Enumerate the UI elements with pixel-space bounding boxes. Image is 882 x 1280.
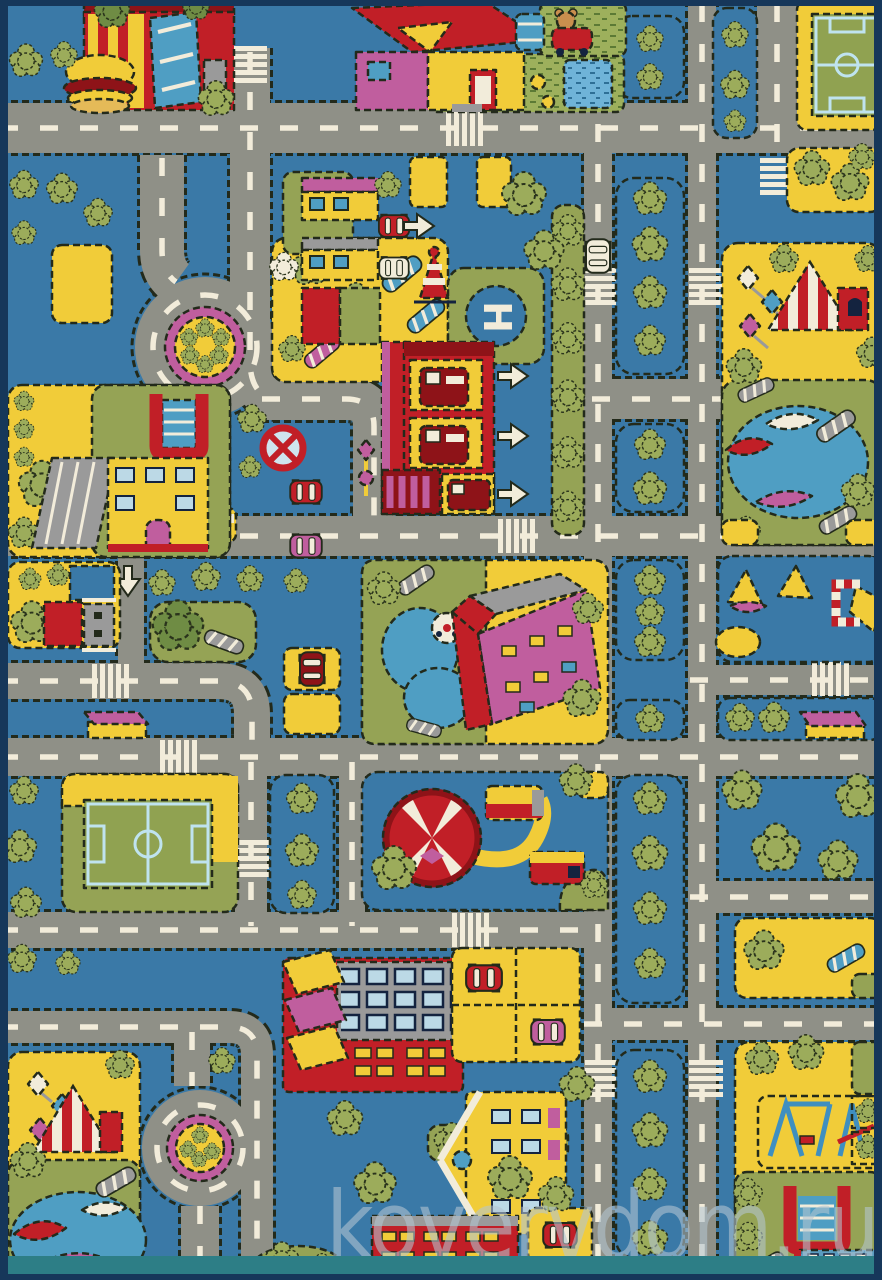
- spool-table: [516, 14, 544, 50]
- ice-cream-truck: [486, 786, 544, 820]
- soccer-field-bottom-left: [62, 774, 238, 912]
- amusement-park: [722, 243, 882, 545]
- fuel-pumps: [82, 598, 116, 652]
- slide-lot-right: [735, 918, 882, 998]
- roundabout-bottom-island: [167, 1115, 233, 1181]
- car: [290, 533, 322, 559]
- boating-pond-right: [716, 556, 882, 662]
- car: [584, 239, 611, 273]
- farm-house: [352, 2, 626, 112]
- tree-lot-right: [787, 144, 882, 212]
- yellow-block-small: [52, 245, 112, 323]
- car: [531, 1018, 565, 1045]
- bottom-left-park: [8, 1050, 146, 1280]
- circus-block: [362, 764, 608, 910]
- soccer-field-top-right: [797, 0, 882, 130]
- apartment-building: [283, 950, 463, 1092]
- parking-lot-centre: [452, 948, 580, 1062]
- no-entry-sign: [263, 428, 303, 468]
- bus-shelter: [84, 712, 148, 738]
- helipad-label: H: [475, 301, 519, 333]
- delivery-truck: [530, 852, 584, 884]
- fire-truck-bay: [442, 474, 494, 514]
- gas-station: [8, 562, 120, 652]
- bus-shelter: [800, 712, 866, 738]
- pink-house-block: [362, 560, 608, 744]
- roundabout-top-island: [165, 307, 245, 387]
- rug-photo: H: [0, 0, 882, 1280]
- car: [466, 964, 502, 993]
- school-left: [8, 385, 230, 557]
- car: [298, 652, 325, 686]
- fire-truck-bay: [410, 360, 482, 410]
- car: [290, 479, 322, 505]
- shelter-strip-right: [718, 698, 882, 740]
- car: [379, 256, 408, 280]
- playmat-city-rug: H: [0, 0, 882, 1280]
- burger-icon: [64, 55, 136, 113]
- fire-truck-bay: [410, 418, 482, 468]
